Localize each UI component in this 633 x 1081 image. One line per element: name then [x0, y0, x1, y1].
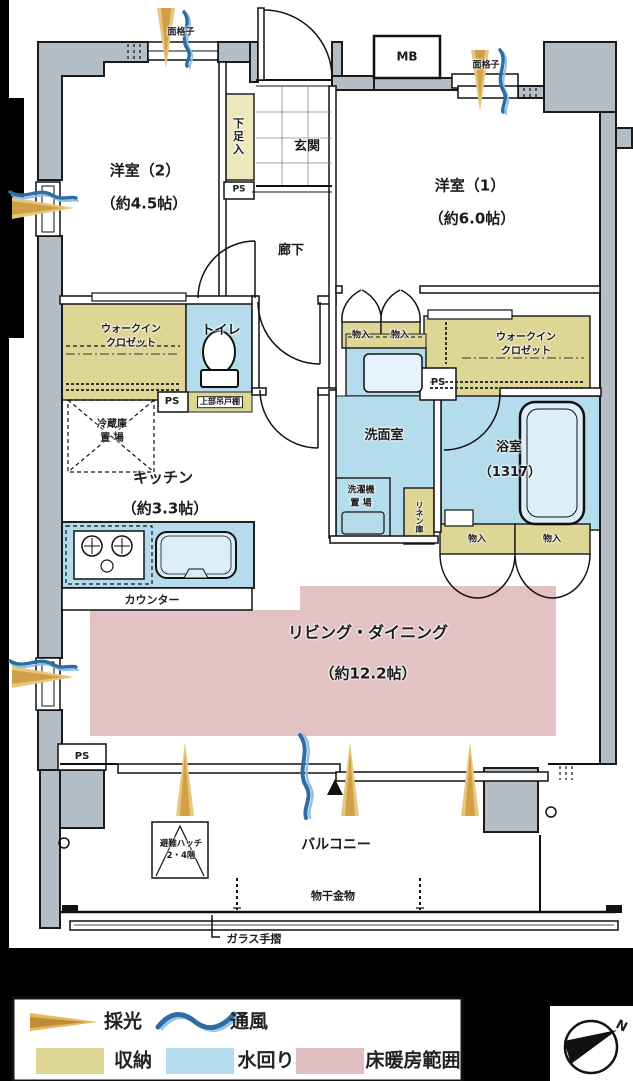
washer-space-label: 洗濯機 置 場 [347, 484, 374, 509]
legend-water-label: 水回り [237, 1048, 294, 1075]
storage-label-1: 物入 [352, 330, 370, 343]
legend-storage-label: 収納 [114, 1048, 152, 1075]
storage-label-2: 物入 [391, 330, 409, 343]
upper-cabinet-label: 上部吊戸棚 [197, 396, 243, 408]
storage-label-3: 物入 [468, 534, 486, 547]
vanity-sink [364, 354, 422, 392]
glass-rail-label: ガラス手摺 [227, 931, 282, 946]
floor-plan-drawing [0, 0, 633, 1081]
washroom-label: 洗面室 [364, 427, 403, 445]
lattice-label-1: 面格子 [167, 27, 194, 40]
balcony-label: バルコニー [301, 836, 371, 856]
stove [66, 526, 152, 584]
legend-airflow-label: 通風 [230, 1009, 268, 1036]
western2-area: （約4.5帖） [101, 194, 188, 215]
entrance-tiles [256, 86, 332, 186]
living-name: リビング・ダイニング [288, 622, 448, 644]
door-closet-top [342, 290, 420, 322]
legend-heating-swatch [296, 1048, 364, 1074]
wic-right-label: ウォークイン クロゼット [496, 331, 556, 359]
kitchen-name: キッチン [133, 468, 193, 489]
floor-plan: 面格子 面格子 MB 玄関 下足入 PS 洋室（2） （約4.5帖） 洋室（1）… [0, 0, 633, 1081]
legend-water-swatch [166, 1048, 234, 1074]
storage-label-4: 物入 [543, 534, 561, 547]
bathroom-name: 浴室 [496, 439, 522, 457]
wic-left-label: ウォークイン クロゼット [101, 323, 161, 351]
entrance-label: 玄関 [294, 138, 320, 156]
bathroom-area: （1317） [479, 464, 541, 482]
entrance-door [256, 8, 332, 86]
ps-label-1: PS [232, 184, 245, 197]
lattice-label-2: 面格子 [472, 60, 499, 73]
evacuation-hatch-label: 避難ハッチ 2・4階 [160, 839, 203, 863]
shoe-cabinet-label: 下足入 [233, 118, 244, 157]
hallway-label: 廊下 [278, 242, 304, 260]
toilet-label: トイレ [201, 322, 240, 340]
legend-storage-swatch [36, 1048, 104, 1074]
counter-label: カウンター [125, 592, 180, 607]
glass-railing [70, 921, 618, 930]
ps-label-2: PS [165, 395, 180, 409]
kitchen-sink [156, 532, 236, 578]
living-area: （約12.2帖） [319, 664, 416, 685]
door-toilet [258, 302, 320, 364]
western1-area: （約6.0帖） [429, 209, 516, 230]
ps-label-3: PS [431, 376, 446, 390]
legend-heating-label: 床暖房範囲 [365, 1048, 460, 1075]
western1-name: 洋室（1） [435, 176, 505, 197]
sliding-window-2 [336, 772, 548, 781]
ps-label-4: PS [75, 750, 90, 764]
kitchen-area: （約3.3帖） [122, 499, 209, 520]
meter-box-label: MB [396, 49, 417, 66]
drying-hardware-label: 物干金物 [311, 888, 355, 903]
fridge-space-label: 冷蔵庫 置 場 [97, 418, 127, 446]
legend-daylight-label: 採光 [104, 1009, 142, 1036]
bath-counter [445, 510, 473, 526]
linen-label: リネン庫 [415, 501, 423, 533]
door-living [260, 390, 318, 448]
western2-name: 洋室（2） [110, 161, 180, 182]
